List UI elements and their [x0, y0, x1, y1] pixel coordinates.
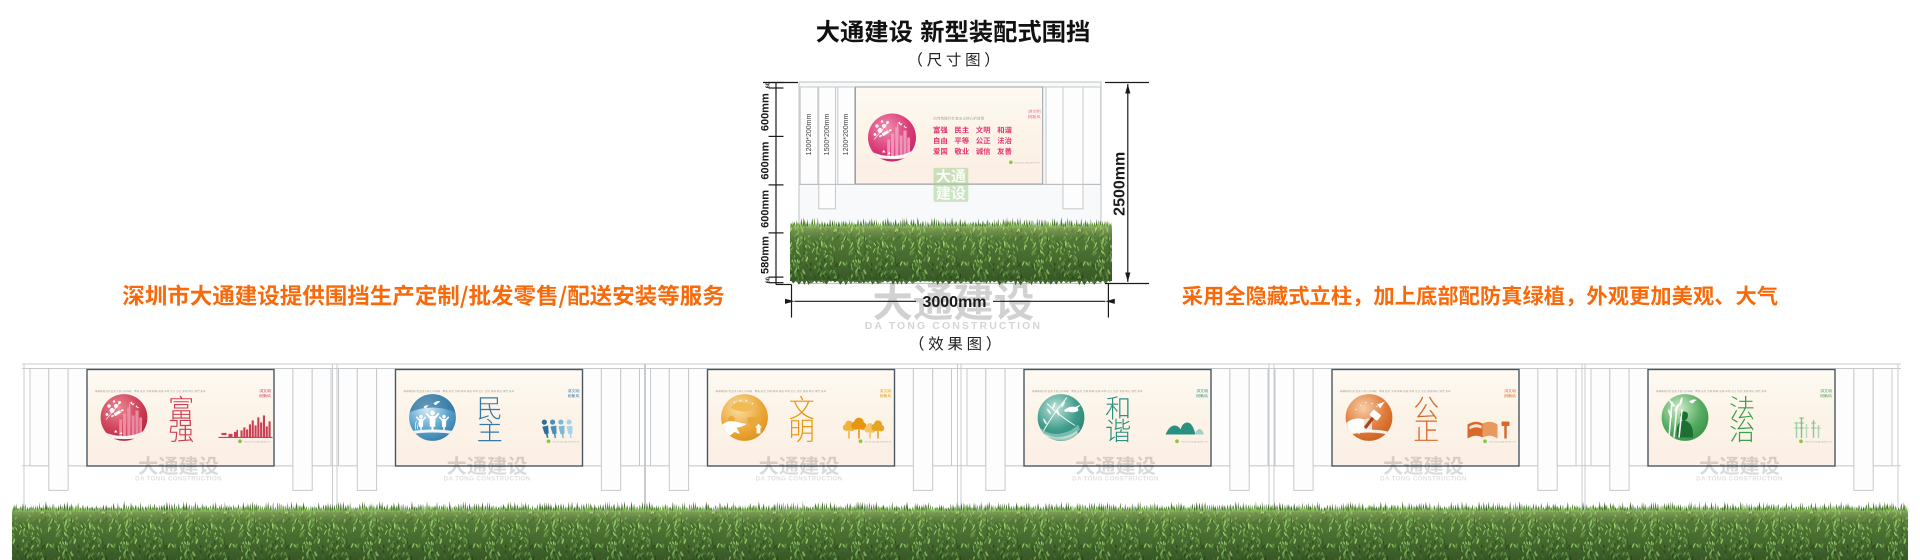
svg-text:600mm: 600mm — [759, 190, 771, 228]
svg-text:600mm: 600mm — [759, 93, 771, 131]
svg-text:600mm: 600mm — [759, 141, 771, 179]
svg-text:DA TONG CONSTRUCTION: DA TONG CONSTRUCTION — [444, 475, 531, 482]
svg-text:DA TONG CONSTRUCTION: DA TONG CONSTRUCTION — [865, 320, 1042, 332]
svg-text:1500*200mm: 1500*200mm — [824, 114, 831, 156]
svg-text:60: 60 — [765, 82, 771, 88]
svg-text:DA TONG CONSTRUCTION: DA TONG CONSTRUCTION — [756, 475, 843, 482]
svg-text:60: 60 — [765, 277, 771, 283]
svg-text:2500mm: 2500mm — [1112, 152, 1129, 216]
svg-text:DA TONG CONSTRUCTION: DA TONG CONSTRUCTION — [1072, 475, 1159, 482]
svg-text:580mm: 580mm — [759, 236, 771, 274]
svg-text:DA TONG CONSTRUCTION: DA TONG CONSTRUCTION — [1696, 475, 1783, 482]
svg-text:1200*200mm: 1200*200mm — [843, 114, 850, 156]
svg-text:3000mm: 3000mm — [922, 294, 986, 311]
svg-text:1200*200mm: 1200*200mm — [806, 114, 813, 156]
svg-text:DA TONG CONSTRUCTION: DA TONG CONSTRUCTION — [1380, 475, 1467, 482]
svg-text:DA TONG CONSTRUCTION: DA TONG CONSTRUCTION — [135, 475, 222, 482]
